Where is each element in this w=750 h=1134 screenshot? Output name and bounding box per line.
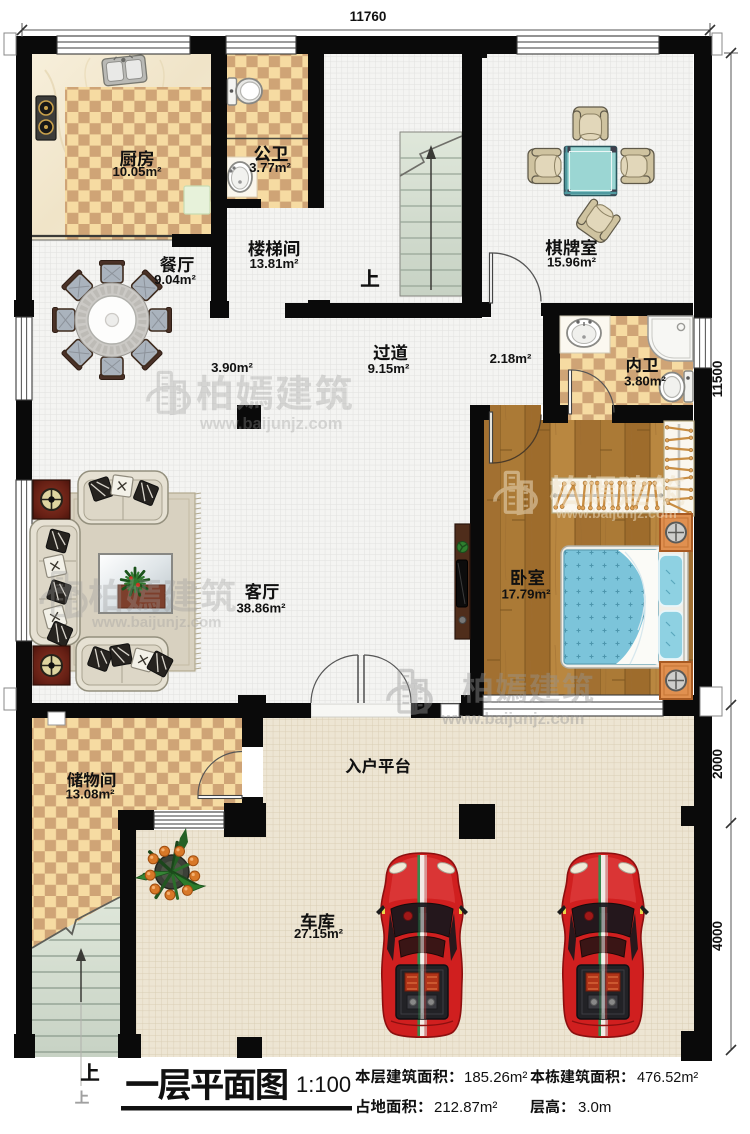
svg-text:9.04m²: 9.04m² bbox=[154, 272, 196, 287]
svg-text:13.08m²: 13.08m² bbox=[65, 787, 115, 802]
svg-text:11500: 11500 bbox=[710, 361, 725, 398]
svg-text:185.26m²: 185.26m² bbox=[464, 1069, 527, 1086]
svg-text:2000: 2000 bbox=[710, 749, 725, 779]
svg-text:476.52m²: 476.52m² bbox=[637, 1070, 698, 1086]
svg-text:15.96m²: 15.96m² bbox=[547, 255, 597, 270]
svg-text:3.77m²: 3.77m² bbox=[249, 160, 291, 175]
svg-text:www.baijunjz.com: www.baijunjz.com bbox=[91, 614, 221, 631]
svg-text:9.15m²: 9.15m² bbox=[368, 361, 410, 376]
svg-text:www.baijunjz.com: www.baijunjz.com bbox=[199, 415, 342, 433]
svg-text:17.79m²: 17.79m² bbox=[501, 587, 551, 602]
svg-text:3.90m²: 3.90m² bbox=[211, 360, 253, 375]
svg-text:1:100: 1:100 bbox=[296, 1072, 351, 1097]
svg-text:27.15m²: 27.15m² bbox=[294, 926, 344, 941]
svg-text:www.baijunjz.com: www.baijunjz.com bbox=[555, 505, 677, 521]
svg-text:www.baijunjz.com: www.baijunjz.com bbox=[441, 710, 584, 728]
svg-text:11760: 11760 bbox=[350, 9, 387, 24]
svg-text:212.87m²: 212.87m² bbox=[434, 1099, 497, 1116]
svg-text:3.0m: 3.0m bbox=[578, 1099, 611, 1116]
svg-text:38.86m²: 38.86m² bbox=[236, 601, 286, 616]
svg-text:13.81m²: 13.81m² bbox=[249, 256, 299, 271]
svg-text:4000: 4000 bbox=[710, 921, 725, 951]
svg-text:2.18m²: 2.18m² bbox=[490, 351, 532, 366]
svg-text:3.80m²: 3.80m² bbox=[624, 374, 666, 389]
svg-text:10.05m²: 10.05m² bbox=[112, 164, 162, 179]
